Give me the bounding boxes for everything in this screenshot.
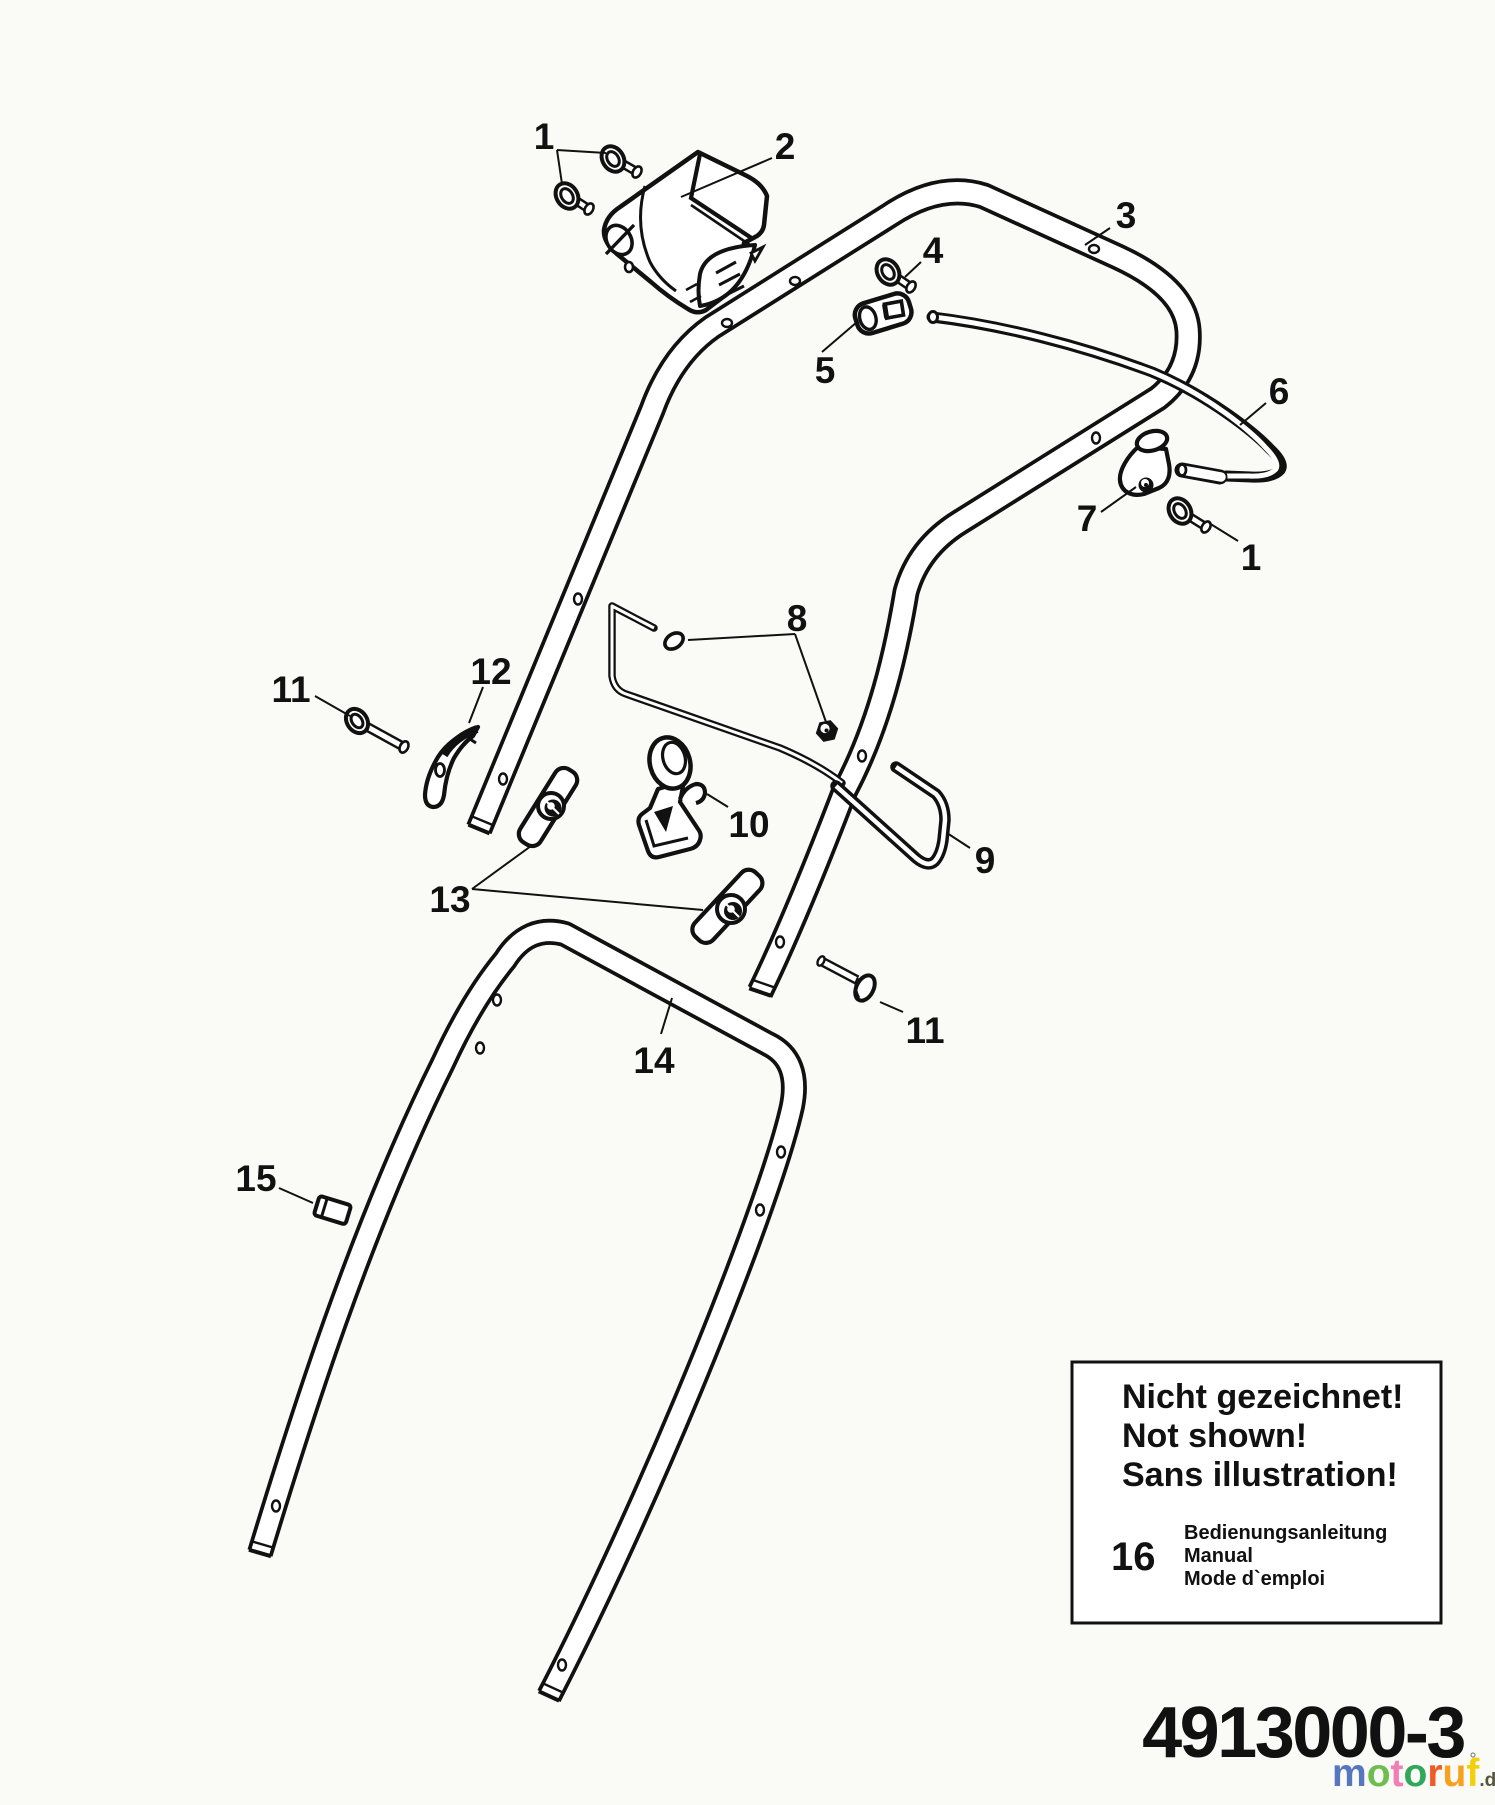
svg-text:11: 11 [905,1010,944,1051]
svg-text:14: 14 [633,1040,675,1081]
svg-text:motoruf.de: motoruf.de [1332,1752,1495,1795]
svg-text:Nicht gezeichnet!: Nicht gezeichnet! [1122,1378,1403,1416]
svg-text:15: 15 [235,1158,276,1199]
svg-text:Manual: Manual [1184,1545,1253,1567]
svg-text:8: 8 [787,598,808,639]
svg-text:12: 12 [470,651,511,692]
svg-text:Mode d`emploi: Mode d`emploi [1184,1568,1325,1590]
svg-text:Not shown!: Not shown! [1122,1417,1307,1455]
svg-text:13: 13 [429,879,470,920]
svg-text:Bedienungsanleitung: Bedienungsanleitung [1184,1522,1387,1544]
svg-text:6: 6 [1269,371,1290,412]
svg-text:2: 2 [775,126,796,167]
svg-text:4: 4 [923,230,944,271]
svg-text:1: 1 [1241,537,1262,578]
svg-text:1: 1 [534,116,555,157]
svg-text:10: 10 [728,804,769,845]
svg-text:3: 3 [1116,195,1137,236]
svg-text:9: 9 [975,840,996,881]
svg-text:5: 5 [815,350,836,391]
svg-text:Sans illustration!: Sans illustration! [1122,1456,1398,1494]
svg-text:16: 16 [1111,1535,1156,1579]
svg-text:11: 11 [271,669,310,710]
svg-text:7: 7 [1077,498,1098,539]
